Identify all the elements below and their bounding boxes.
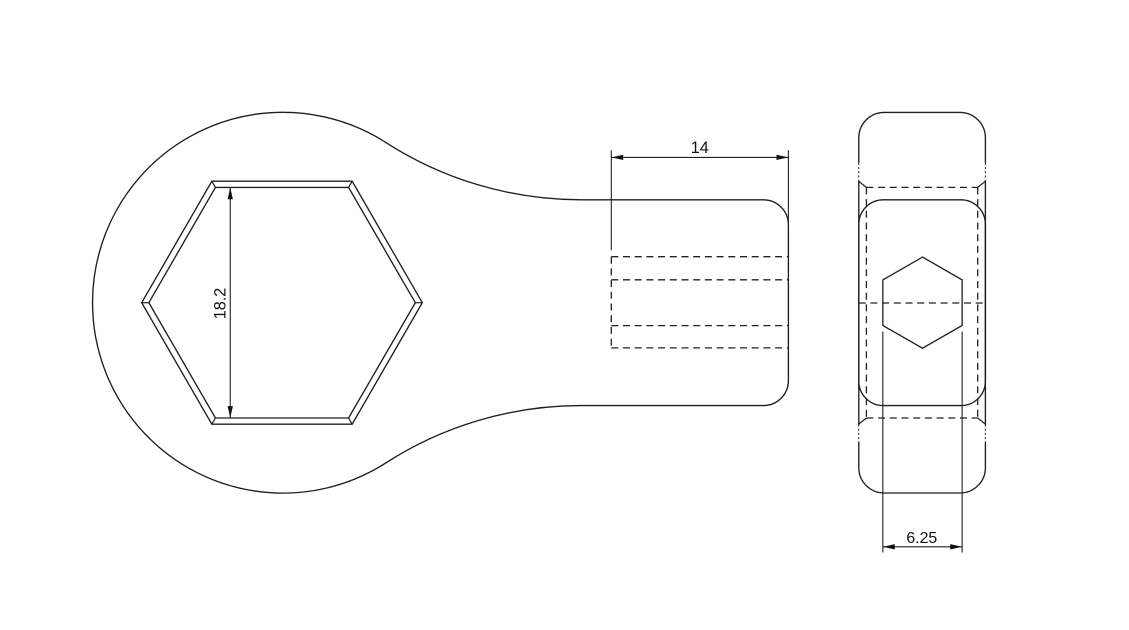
svg-text:6.25: 6.25 [906,530,937,547]
svg-text:14: 14 [691,139,709,157]
svg-text:18.2: 18.2 [212,288,230,320]
